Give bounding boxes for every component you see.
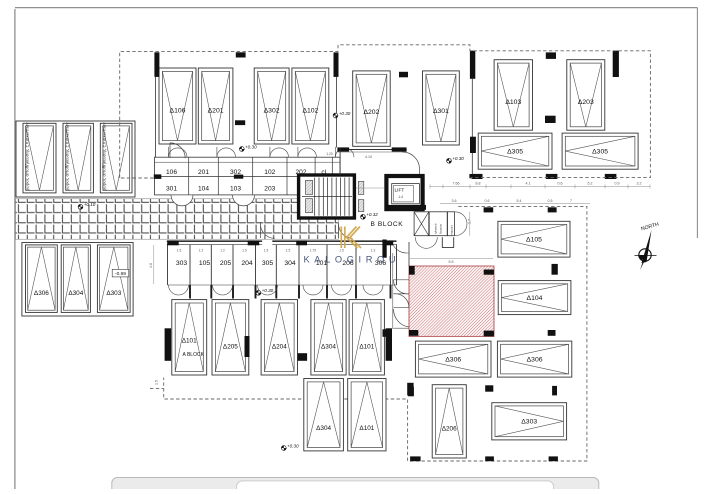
svg-text:Δ202: Δ202 (363, 109, 379, 116)
svg-text:5.5: 5.5 (449, 260, 454, 264)
svg-text:Δ203: Δ203 (578, 99, 594, 106)
svg-text:7.66: 7.66 (453, 182, 460, 186)
svg-text:1.5: 1.5 (155, 380, 159, 385)
svg-text:3.2: 3.2 (637, 182, 642, 186)
svg-text:0.9: 0.9 (615, 182, 620, 186)
svg-text:1.75: 1.75 (310, 249, 316, 253)
svg-text:Δ204: Δ204 (272, 344, 287, 351)
svg-text:1.3: 1.3 (371, 249, 376, 253)
svg-text:304: 304 (284, 260, 296, 267)
svg-text:Δ303: Δ303 (106, 290, 121, 297)
svg-text:+0.30: +0.30 (262, 288, 274, 293)
svg-text:-0.69: -0.69 (115, 271, 126, 277)
svg-text:4.1: 4.1 (526, 182, 531, 186)
svg-text:Δ306: Δ306 (445, 356, 461, 363)
svg-text:1.2: 1.2 (199, 249, 204, 253)
svg-text:204: 204 (241, 260, 253, 267)
svg-text:Δ302: Δ302 (264, 107, 280, 114)
svg-text:Δ304: Δ304 (316, 425, 331, 432)
svg-text:Δ303: Δ303 (521, 419, 537, 426)
svg-text:Δ104: Δ104 (527, 295, 543, 302)
svg-text:1.2: 1.2 (220, 249, 225, 253)
svg-text:4.10: 4.10 (365, 155, 372, 159)
svg-text:Δ305: Δ305 (592, 148, 608, 155)
svg-text:5.2: 5.2 (588, 182, 593, 186)
svg-text:+0.30: +0.30 (339, 111, 351, 116)
svg-text:1.5: 1.5 (264, 249, 269, 253)
svg-text:Δ102: Δ102 (302, 107, 318, 114)
svg-text:+0.30: +0.30 (245, 144, 257, 149)
svg-text:Δ101: Δ101 (359, 344, 374, 351)
svg-text:0.6: 0.6 (485, 199, 490, 203)
svg-text:7: 7 (570, 199, 572, 203)
svg-text:δοχείου: δοχείου (439, 223, 443, 234)
svg-text:106: 106 (166, 169, 177, 176)
svg-text:301: 301 (166, 186, 177, 193)
svg-text:205: 205 (220, 260, 232, 267)
svg-text:1.5: 1.5 (177, 249, 182, 253)
svg-text:χώρος αποθήκευσης Επισκεπτών: χώρος αποθήκευσης Επισκεπτών (24, 122, 29, 191)
svg-text:B BLOCK: B BLOCK (371, 221, 404, 228)
svg-text:1.4: 1.4 (399, 195, 404, 199)
svg-text:παροχή: παροχή (449, 225, 453, 235)
svg-text:+0.30: +0.30 (452, 156, 464, 161)
svg-text:104: 104 (198, 186, 209, 193)
svg-text:1.20: 1.20 (326, 152, 333, 156)
svg-text:+0.10: +0.10 (84, 202, 96, 207)
svg-text:Δ304: Δ304 (68, 290, 83, 297)
svg-text:Δ105: Δ105 (526, 237, 542, 244)
svg-text:Δ101: Δ101 (359, 425, 374, 432)
svg-text:Δ206: Δ206 (442, 426, 457, 433)
svg-text:8.8: 8.8 (476, 182, 481, 186)
svg-text:Δ306: Δ306 (34, 290, 49, 297)
svg-text:1.5: 1.5 (242, 249, 247, 253)
svg-text:5.4: 5.4 (517, 199, 522, 203)
svg-text:4.6: 4.6 (149, 263, 153, 268)
svg-text:1.5: 1.5 (339, 249, 344, 253)
svg-text:Δ205: Δ205 (223, 344, 238, 351)
svg-text:0.5: 0.5 (548, 199, 553, 203)
svg-text:102: 102 (264, 169, 275, 176)
svg-text:Δ306: Δ306 (527, 356, 543, 363)
svg-text:χώρος αποθήκευσης Επισκεπτών: χώρος αποθήκευσης Επισκεπτών (102, 122, 107, 191)
svg-text:χώρος αποθήκευσης Επισκεπτών: χώρος αποθήκευσης Επισκεπτών (64, 122, 69, 191)
svg-text:Δ305: Δ305 (507, 148, 523, 155)
svg-text:+0.30: +0.30 (287, 443, 299, 448)
svg-text:A BLOCK: A BLOCK (183, 352, 205, 358)
svg-text:305: 305 (262, 260, 274, 267)
svg-text:Δ106: Δ106 (170, 107, 186, 114)
svg-text:3.6: 3.6 (452, 199, 457, 203)
svg-text:KALOGIROU: KALOGIROU (304, 255, 401, 265)
svg-text:103: 103 (230, 186, 241, 193)
svg-text:Δ103: Δ103 (505, 99, 521, 106)
svg-text:Δ304: Δ304 (321, 344, 336, 351)
svg-text:Δ101: Δ101 (182, 338, 197, 345)
svg-text:0.6: 0.6 (558, 182, 563, 186)
svg-text:Δ301: Δ301 (433, 108, 449, 115)
svg-text:203: 203 (264, 186, 275, 193)
svg-text:LIFT: LIFT (395, 188, 405, 194)
svg-text:303: 303 (176, 260, 188, 267)
svg-text:105: 105 (199, 260, 211, 267)
svg-text:Δ201: Δ201 (208, 107, 224, 114)
svg-text:1.5: 1.5 (286, 249, 291, 253)
svg-text:ηλιακού: ηλιακού (434, 223, 438, 234)
svg-text:201: 201 (198, 169, 209, 176)
svg-text:+0.32: +0.32 (366, 212, 378, 217)
